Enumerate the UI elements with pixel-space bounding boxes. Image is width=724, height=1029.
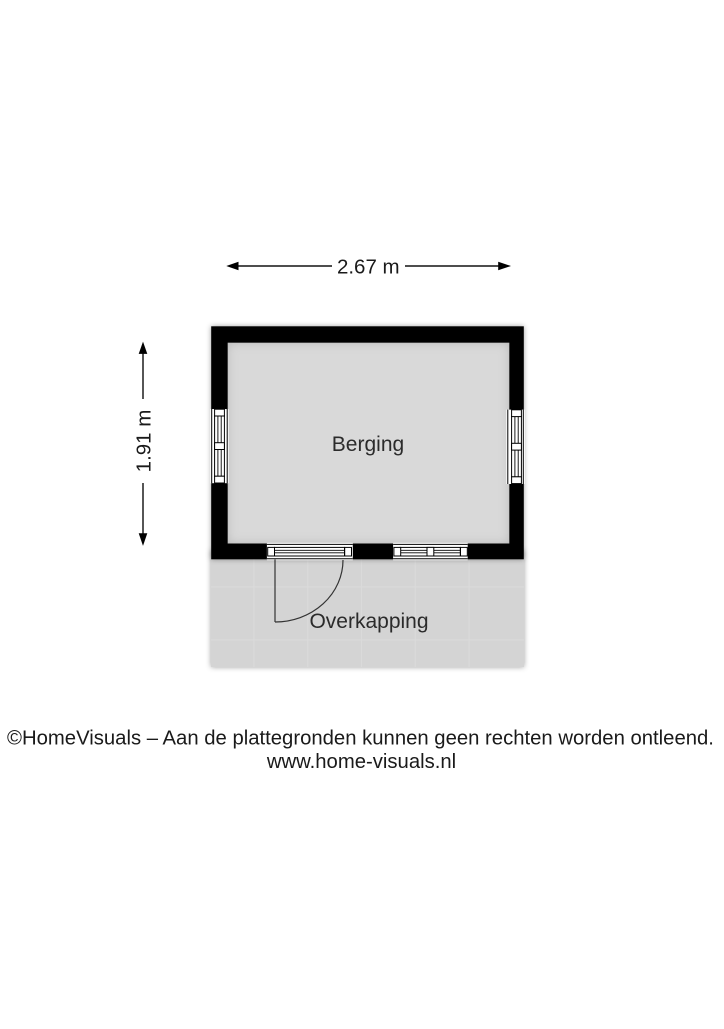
svg-text:Overkapping: Overkapping — [309, 610, 428, 633]
svg-text:Berging: Berging — [332, 433, 404, 456]
svg-text:©HomeVisuals – Aan de plattegr: ©HomeVisuals – Aan de plattegronden kunn… — [7, 727, 714, 749]
svg-text:2.67 m: 2.67 m — [337, 255, 400, 278]
svg-text:www.home-visuals.nl: www.home-visuals.nl — [266, 751, 456, 773]
svg-text:1.91 m: 1.91 m — [132, 410, 155, 473]
